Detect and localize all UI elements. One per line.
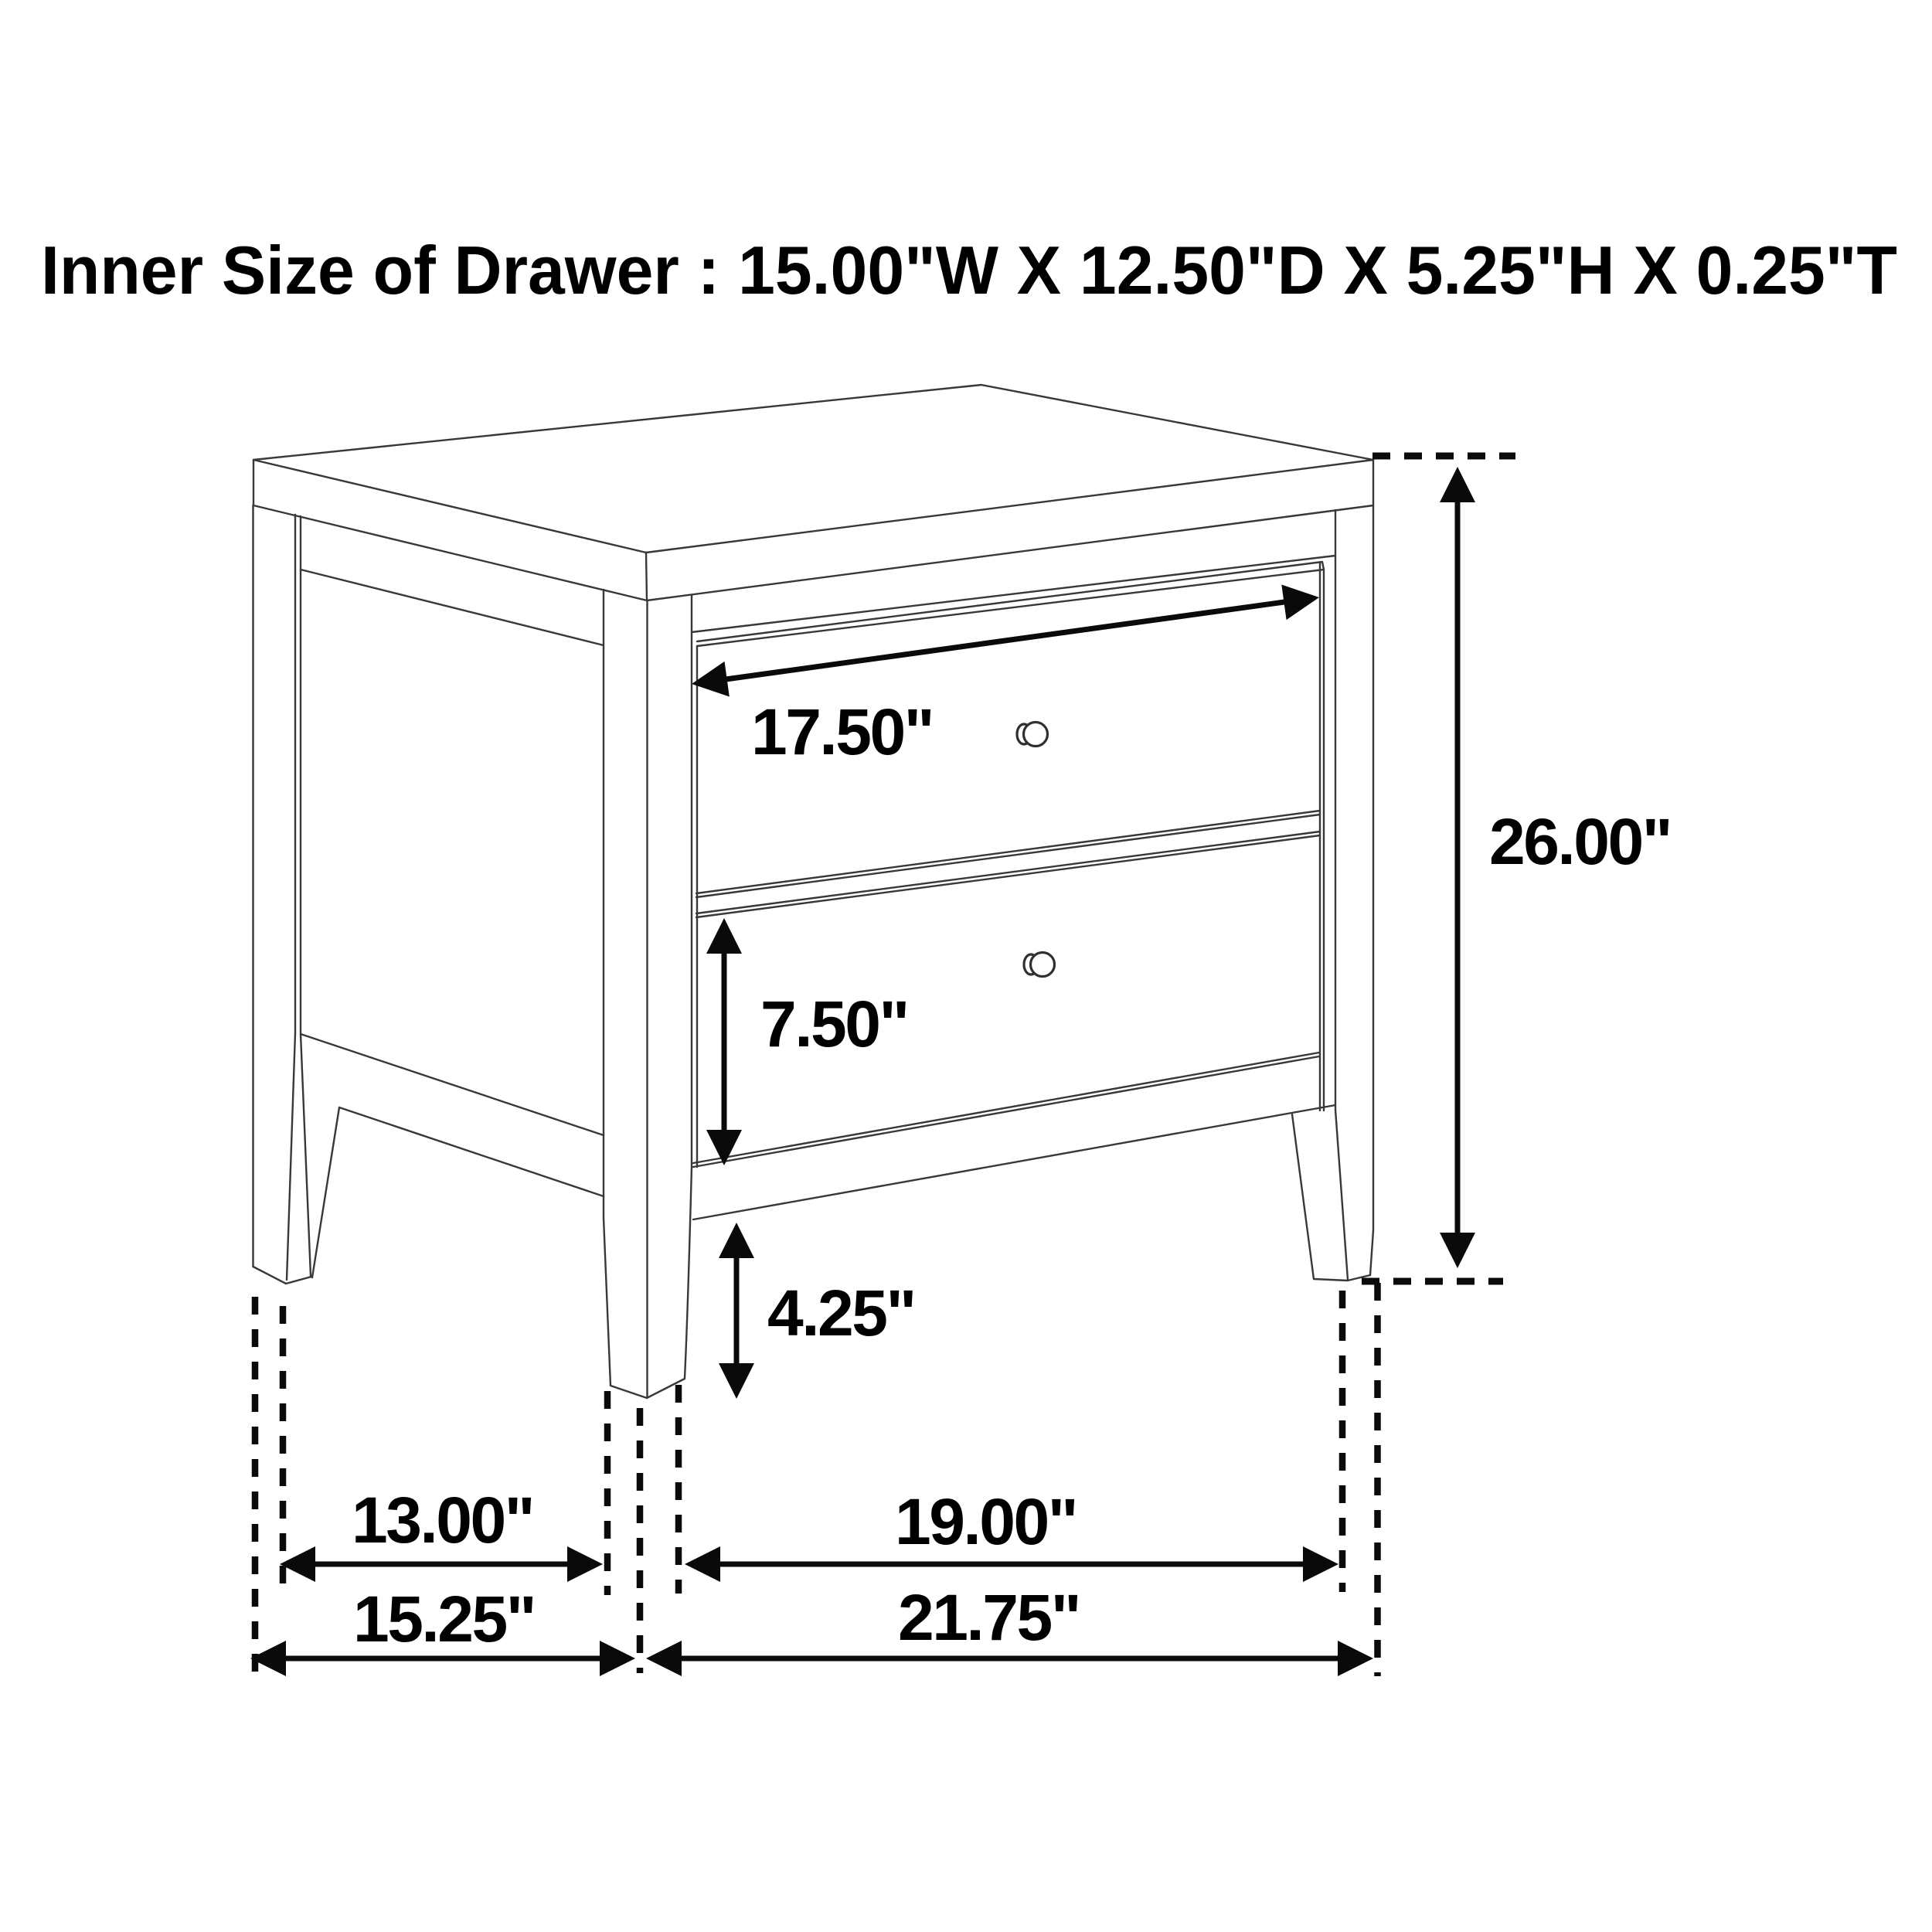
- svg-text:Inner Size of Drawer : 15.00"W: Inner Size of Drawer : 15.00"W X 12.50"D…: [41, 232, 1897, 308]
- svg-text:13.00": 13.00": [352, 1484, 533, 1556]
- svg-text:7.50": 7.50": [760, 988, 908, 1060]
- svg-text:19.00": 19.00": [895, 1485, 1077, 1558]
- svg-text:4.25": 4.25": [767, 1277, 915, 1349]
- svg-text:21.75": 21.75": [898, 1581, 1080, 1654]
- svg-text:26.00": 26.00": [1489, 805, 1671, 878]
- svg-text:17.50": 17.50": [751, 696, 933, 768]
- svg-text:15.25": 15.25": [353, 1583, 535, 1655]
